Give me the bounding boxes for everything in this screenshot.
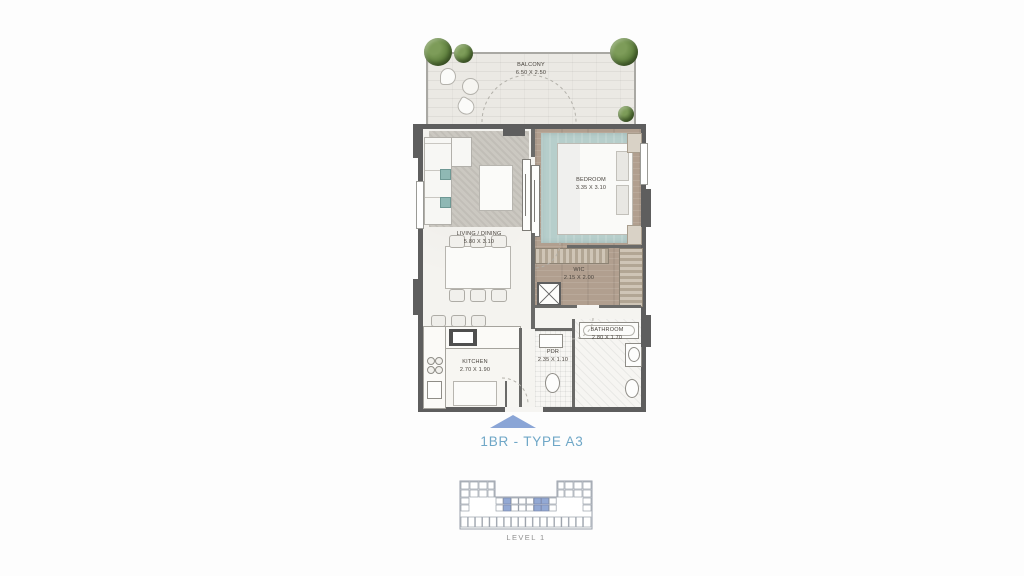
wall <box>567 245 641 248</box>
wardrobe-icon <box>535 248 609 264</box>
door-frame-block <box>503 124 525 136</box>
basin-icon <box>628 347 640 362</box>
unit-outline: LIVING / DINING 5.80 X 3.10 BEDROOM 3.35… <box>418 124 646 412</box>
room-name: LIVING / DINING <box>427 231 531 239</box>
sliding-door-icon <box>522 159 531 231</box>
bathroom-label: BATHROOM 2.80 X 1.70 <box>575 327 639 342</box>
wall <box>535 328 575 331</box>
key-plan-diagram <box>459 477 593 531</box>
burner-icon <box>435 366 443 374</box>
burner-icon <box>435 357 443 365</box>
room-dims: 2.80 X 1.70 <box>575 335 639 343</box>
coffee-table-icon <box>479 165 513 211</box>
wardrobe-icon <box>619 248 643 307</box>
chair-icon <box>449 289 465 302</box>
room-dims: 5.80 X 3.10 <box>427 239 531 247</box>
entry-arrow-icon <box>490 415 536 428</box>
plant-icon <box>618 106 634 122</box>
entry-opening <box>505 407 543 412</box>
room-dims: 2.70 X 1.90 <box>443 367 507 375</box>
room-dims: 2.15 X 2.00 <box>543 275 615 283</box>
pdr-label: PDR 2.35 X 1.10 <box>531 349 575 364</box>
level-label: LEVEL 1 <box>459 533 593 542</box>
wall-column <box>413 124 423 158</box>
burner-icon <box>427 357 435 365</box>
entry-door-leaf <box>505 381 507 408</box>
room-name: KITCHEN <box>443 359 507 367</box>
toilet-icon <box>625 379 639 398</box>
window-icon <box>640 143 648 185</box>
floor-plan: BALCONY 6.50 X 2.50 <box>416 26 648 418</box>
door-opening <box>577 305 599 308</box>
pdr-sink-icon <box>539 334 563 348</box>
room-name: BATHROOM <box>575 327 639 335</box>
balcony-chair-icon <box>440 68 456 85</box>
chair-icon <box>491 289 507 302</box>
shaft-x-icon <box>537 282 561 306</box>
kitchen-island <box>453 381 497 406</box>
toilet-icon <box>545 373 560 393</box>
balcony-table-icon <box>462 78 479 95</box>
chair-icon <box>470 289 486 302</box>
room-dims: 2.35 X 1.10 <box>531 357 575 365</box>
pillow-icon <box>440 197 451 208</box>
plant-icon <box>454 44 473 63</box>
room-name: WIC <box>543 267 615 275</box>
plant-icon <box>610 38 638 66</box>
sofa-icon <box>424 137 452 225</box>
wall-column <box>641 189 651 227</box>
nightstand-icon <box>627 225 642 245</box>
wall <box>519 328 522 407</box>
stove-icon <box>449 329 477 346</box>
balcony-chair-icon <box>455 95 478 117</box>
key-plan-svg <box>459 477 593 531</box>
wic-label: WIC 2.15 X 2.00 <box>543 267 615 282</box>
bedroom-label: BEDROOM 3.35 X 3.10 <box>543 177 639 192</box>
burner-icon <box>427 366 435 374</box>
room-name: BEDROOM <box>543 177 639 185</box>
wall-column <box>413 279 423 315</box>
wall <box>531 233 535 329</box>
unit-type-title: 1BR - TYPE A3 <box>406 434 658 449</box>
kitchen-label: KITCHEN 2.70 X 1.90 <box>443 359 507 374</box>
balcony-label: BALCONY 6.50 X 2.50 <box>468 62 594 77</box>
room-dims: 6.50 X 2.50 <box>468 70 594 78</box>
room-balcony: BALCONY 6.50 X 2.50 <box>426 52 636 126</box>
page: BALCONY 6.50 X 2.50 <box>0 0 1024 576</box>
wall-column <box>641 315 651 347</box>
plant-icon <box>424 38 452 66</box>
room-name: BALCONY <box>468 62 594 70</box>
wall <box>531 129 535 157</box>
pillow-icon <box>440 169 451 180</box>
room-dims: 3.35 X 3.10 <box>543 185 639 193</box>
kitchen-sink-icon <box>427 381 442 399</box>
sliding-door-icon <box>531 165 540 237</box>
window-icon <box>416 181 424 229</box>
living-label: LIVING / DINING 5.80 X 3.10 <box>427 231 531 246</box>
room-name: PDR <box>531 349 575 357</box>
dining-table-icon <box>445 246 511 289</box>
